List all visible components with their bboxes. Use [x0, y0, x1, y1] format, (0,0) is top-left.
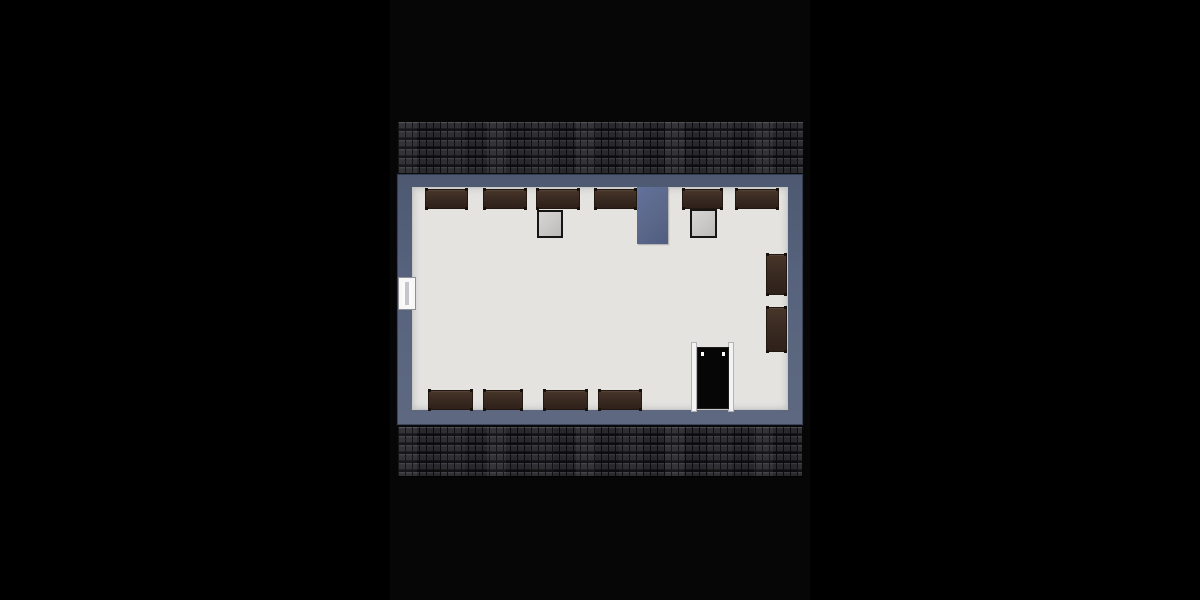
bench-top-1: [425, 189, 468, 209]
roof-bottom: [398, 427, 802, 476]
bench-top-5: [682, 189, 723, 209]
door-leaf: [698, 348, 728, 408]
window-glass: [402, 282, 412, 305]
bench-right-2: [766, 307, 787, 352]
door-opening: [691, 342, 734, 412]
window: [398, 277, 416, 310]
skylight-right: [690, 209, 717, 238]
bench-top-4: [594, 189, 637, 209]
bench-bottom-1: [428, 390, 473, 410]
bench-top-2: [483, 189, 527, 209]
skylight-left: [537, 210, 563, 238]
door-frame-right: [728, 342, 734, 412]
bench-top-3: [536, 189, 580, 209]
door-frame-left: [691, 342, 697, 412]
bench-right-1: [766, 254, 787, 295]
chimney: [637, 187, 668, 244]
roof-top: [398, 122, 803, 173]
bench-bottom-4: [598, 390, 642, 410]
bench-bottom-3: [543, 390, 588, 410]
attic-floorplan: [0, 0, 1200, 600]
bench-top-6: [735, 189, 779, 209]
bench-bottom-2: [483, 390, 523, 410]
